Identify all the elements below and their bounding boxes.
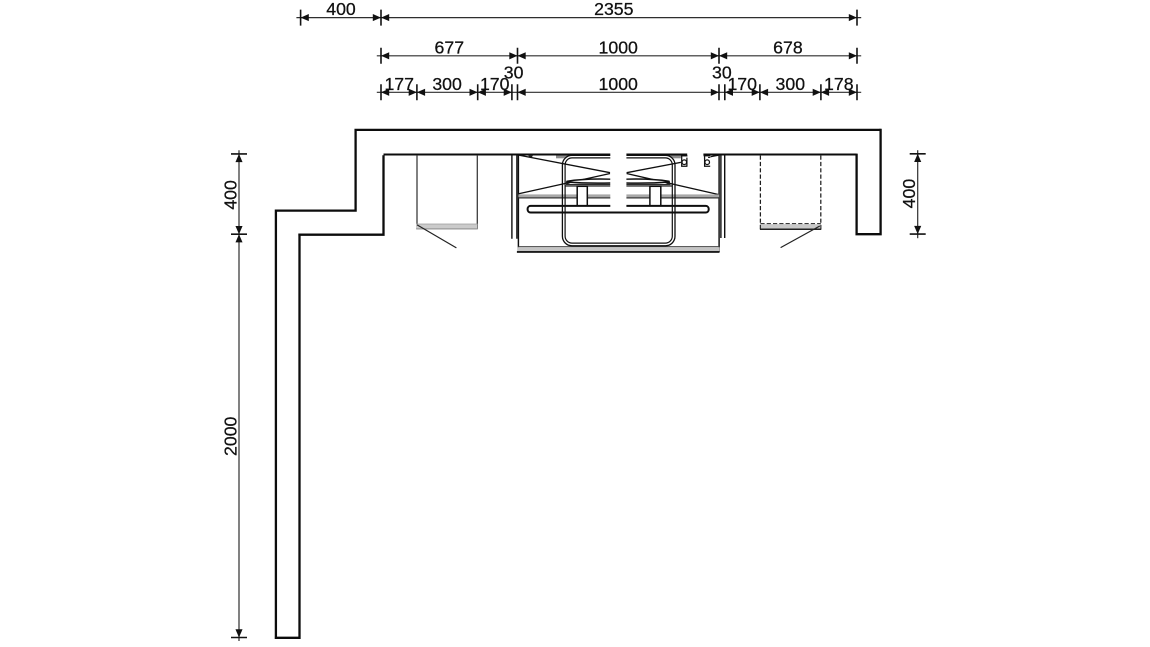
svg-text:1000: 1000 <box>599 38 639 58</box>
svg-text:300: 300 <box>432 74 462 94</box>
svg-text:677: 677 <box>435 38 465 58</box>
svg-text:400: 400 <box>220 180 240 210</box>
svg-text:400: 400 <box>326 0 356 19</box>
svg-text:170: 170 <box>727 74 757 94</box>
svg-text:2000: 2000 <box>220 416 240 456</box>
svg-text:400: 400 <box>899 179 919 209</box>
svg-text:30: 30 <box>504 63 524 83</box>
svg-text:2355: 2355 <box>594 0 634 19</box>
svg-text:300: 300 <box>776 74 806 94</box>
svg-text:678: 678 <box>773 38 803 58</box>
svg-text:178: 178 <box>824 74 854 94</box>
svg-text:177: 177 <box>384 74 414 94</box>
svg-text:1000: 1000 <box>599 74 639 94</box>
